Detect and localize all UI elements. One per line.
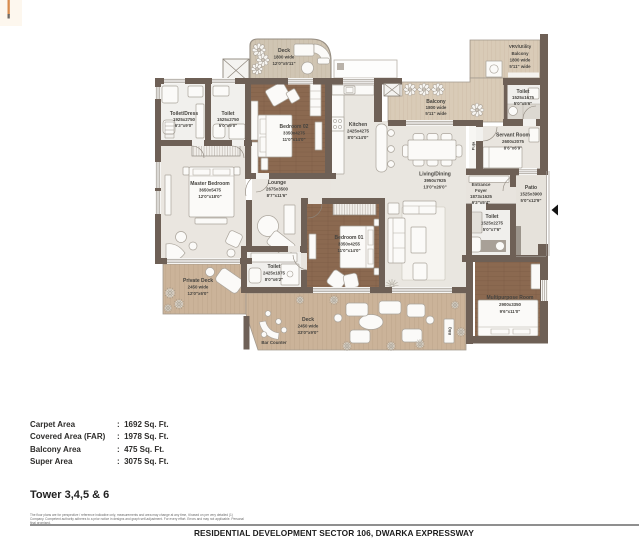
svg-text:VRV/Utility: VRV/Utility bbox=[509, 44, 532, 49]
svg-text:13'0"x26'0": 13'0"x26'0" bbox=[423, 185, 446, 190]
svg-text:1800 wide: 1800 wide bbox=[426, 105, 447, 110]
svg-text:3350x4275: 3350x4275 bbox=[283, 131, 306, 136]
svg-text:Kitchen: Kitchen bbox=[349, 122, 367, 128]
svg-text:Servant Room: Servant Room bbox=[496, 133, 530, 139]
svg-text:Private Deck: Private Deck bbox=[183, 278, 213, 284]
svg-text:3950x7925: 3950x7925 bbox=[424, 178, 447, 183]
svg-text:8'0"x6'2": 8'0"x6'2" bbox=[265, 277, 283, 282]
svg-text:9'6"x11'0": 9'6"x11'0" bbox=[500, 309, 521, 314]
svg-text:2675x3500: 2675x3500 bbox=[266, 187, 289, 192]
svg-text:1873x1625: 1873x1625 bbox=[470, 194, 493, 199]
svg-text:8'0"x14'0": 8'0"x14'0" bbox=[348, 135, 369, 140]
svg-text:8'7"x11'6": 8'7"x11'6" bbox=[267, 193, 288, 198]
svg-text:Lounge: Lounge bbox=[268, 180, 286, 186]
svg-text:2425x4275: 2425x4275 bbox=[347, 129, 370, 134]
svg-text:1800 wide: 1800 wide bbox=[274, 55, 295, 60]
svg-text:Foyer: Foyer bbox=[475, 188, 487, 193]
svg-text:1800 wide: 1800 wide bbox=[510, 58, 531, 63]
svg-text:11'0"x14'0": 11'0"x14'0" bbox=[282, 137, 305, 142]
svg-text:Entrance: Entrance bbox=[472, 182, 491, 187]
svg-text:Bar Counter: Bar Counter bbox=[261, 340, 287, 345]
svg-text:12'0"x6'0": 12'0"x6'0" bbox=[188, 291, 209, 296]
svg-text:BBQ: BBQ bbox=[448, 327, 452, 335]
svg-text:Bedroom 01: Bedroom 01 bbox=[335, 235, 364, 241]
svg-text:1525x1675: 1525x1675 bbox=[512, 95, 535, 100]
svg-text:11'0"x14'0": 11'0"x14'0" bbox=[337, 248, 360, 253]
svg-text:8'6"x6'9": 8'6"x6'9" bbox=[504, 146, 522, 151]
svg-text:2600x2075: 2600x2075 bbox=[502, 139, 525, 144]
svg-text:5'0"x9'0": 5'0"x9'0" bbox=[219, 123, 237, 128]
svg-text:2900x3350: 2900x3350 bbox=[499, 302, 522, 307]
svg-text:Deck: Deck bbox=[278, 48, 290, 54]
svg-text:6'3"x9'0": 6'3"x9'0" bbox=[175, 123, 193, 128]
svg-text:5'0"x12'9": 5'0"x12'9" bbox=[521, 198, 542, 203]
svg-text:1925x2750: 1925x2750 bbox=[173, 117, 196, 122]
svg-text:6'2"x5'4": 6'2"x5'4" bbox=[472, 200, 490, 205]
svg-text:2450 wide: 2450 wide bbox=[298, 324, 319, 329]
svg-text:Living/Dining: Living/Dining bbox=[419, 172, 451, 178]
svg-text:1525x2275: 1525x2275 bbox=[481, 221, 504, 226]
svg-text:1525x3900: 1525x3900 bbox=[520, 192, 543, 197]
svg-text:Patio: Patio bbox=[525, 185, 537, 191]
svg-text:5'11" wide: 5'11" wide bbox=[425, 111, 447, 116]
svg-text:3350x4255: 3350x4255 bbox=[338, 242, 361, 247]
svg-text:12'0"x18'0": 12'0"x18'0" bbox=[198, 194, 221, 199]
svg-text:5'0"x5'6": 5'0"x5'6" bbox=[514, 101, 532, 106]
svg-text:12'0"x5'11": 12'0"x5'11" bbox=[272, 61, 295, 66]
svg-text:Balcony: Balcony bbox=[511, 51, 529, 56]
svg-text:1525x2750: 1525x2750 bbox=[217, 117, 240, 122]
svg-text:5'11" wide: 5'11" wide bbox=[509, 64, 531, 69]
svg-text:Deck: Deck bbox=[302, 317, 314, 323]
svg-text:2450 wide: 2450 wide bbox=[188, 285, 209, 290]
svg-text:Multipurpose Room: Multipurpose Room bbox=[487, 295, 534, 301]
svg-text:33'0"x9'0": 33'0"x9'0" bbox=[298, 330, 319, 335]
svg-text:Toilet: Toilet bbox=[486, 214, 499, 220]
svg-text:5'0"x7'6": 5'0"x7'6" bbox=[483, 227, 501, 232]
svg-text:Bedroom 02: Bedroom 02 bbox=[280, 124, 309, 130]
svg-text:Puja: Puja bbox=[471, 141, 476, 150]
svg-text:3650x5475: 3650x5475 bbox=[199, 188, 222, 193]
svg-text:Toilet: Toilet bbox=[268, 264, 281, 270]
svg-text:Master Bedroom: Master Bedroom bbox=[190, 181, 230, 187]
svg-text:2425x1875: 2425x1875 bbox=[263, 271, 286, 276]
